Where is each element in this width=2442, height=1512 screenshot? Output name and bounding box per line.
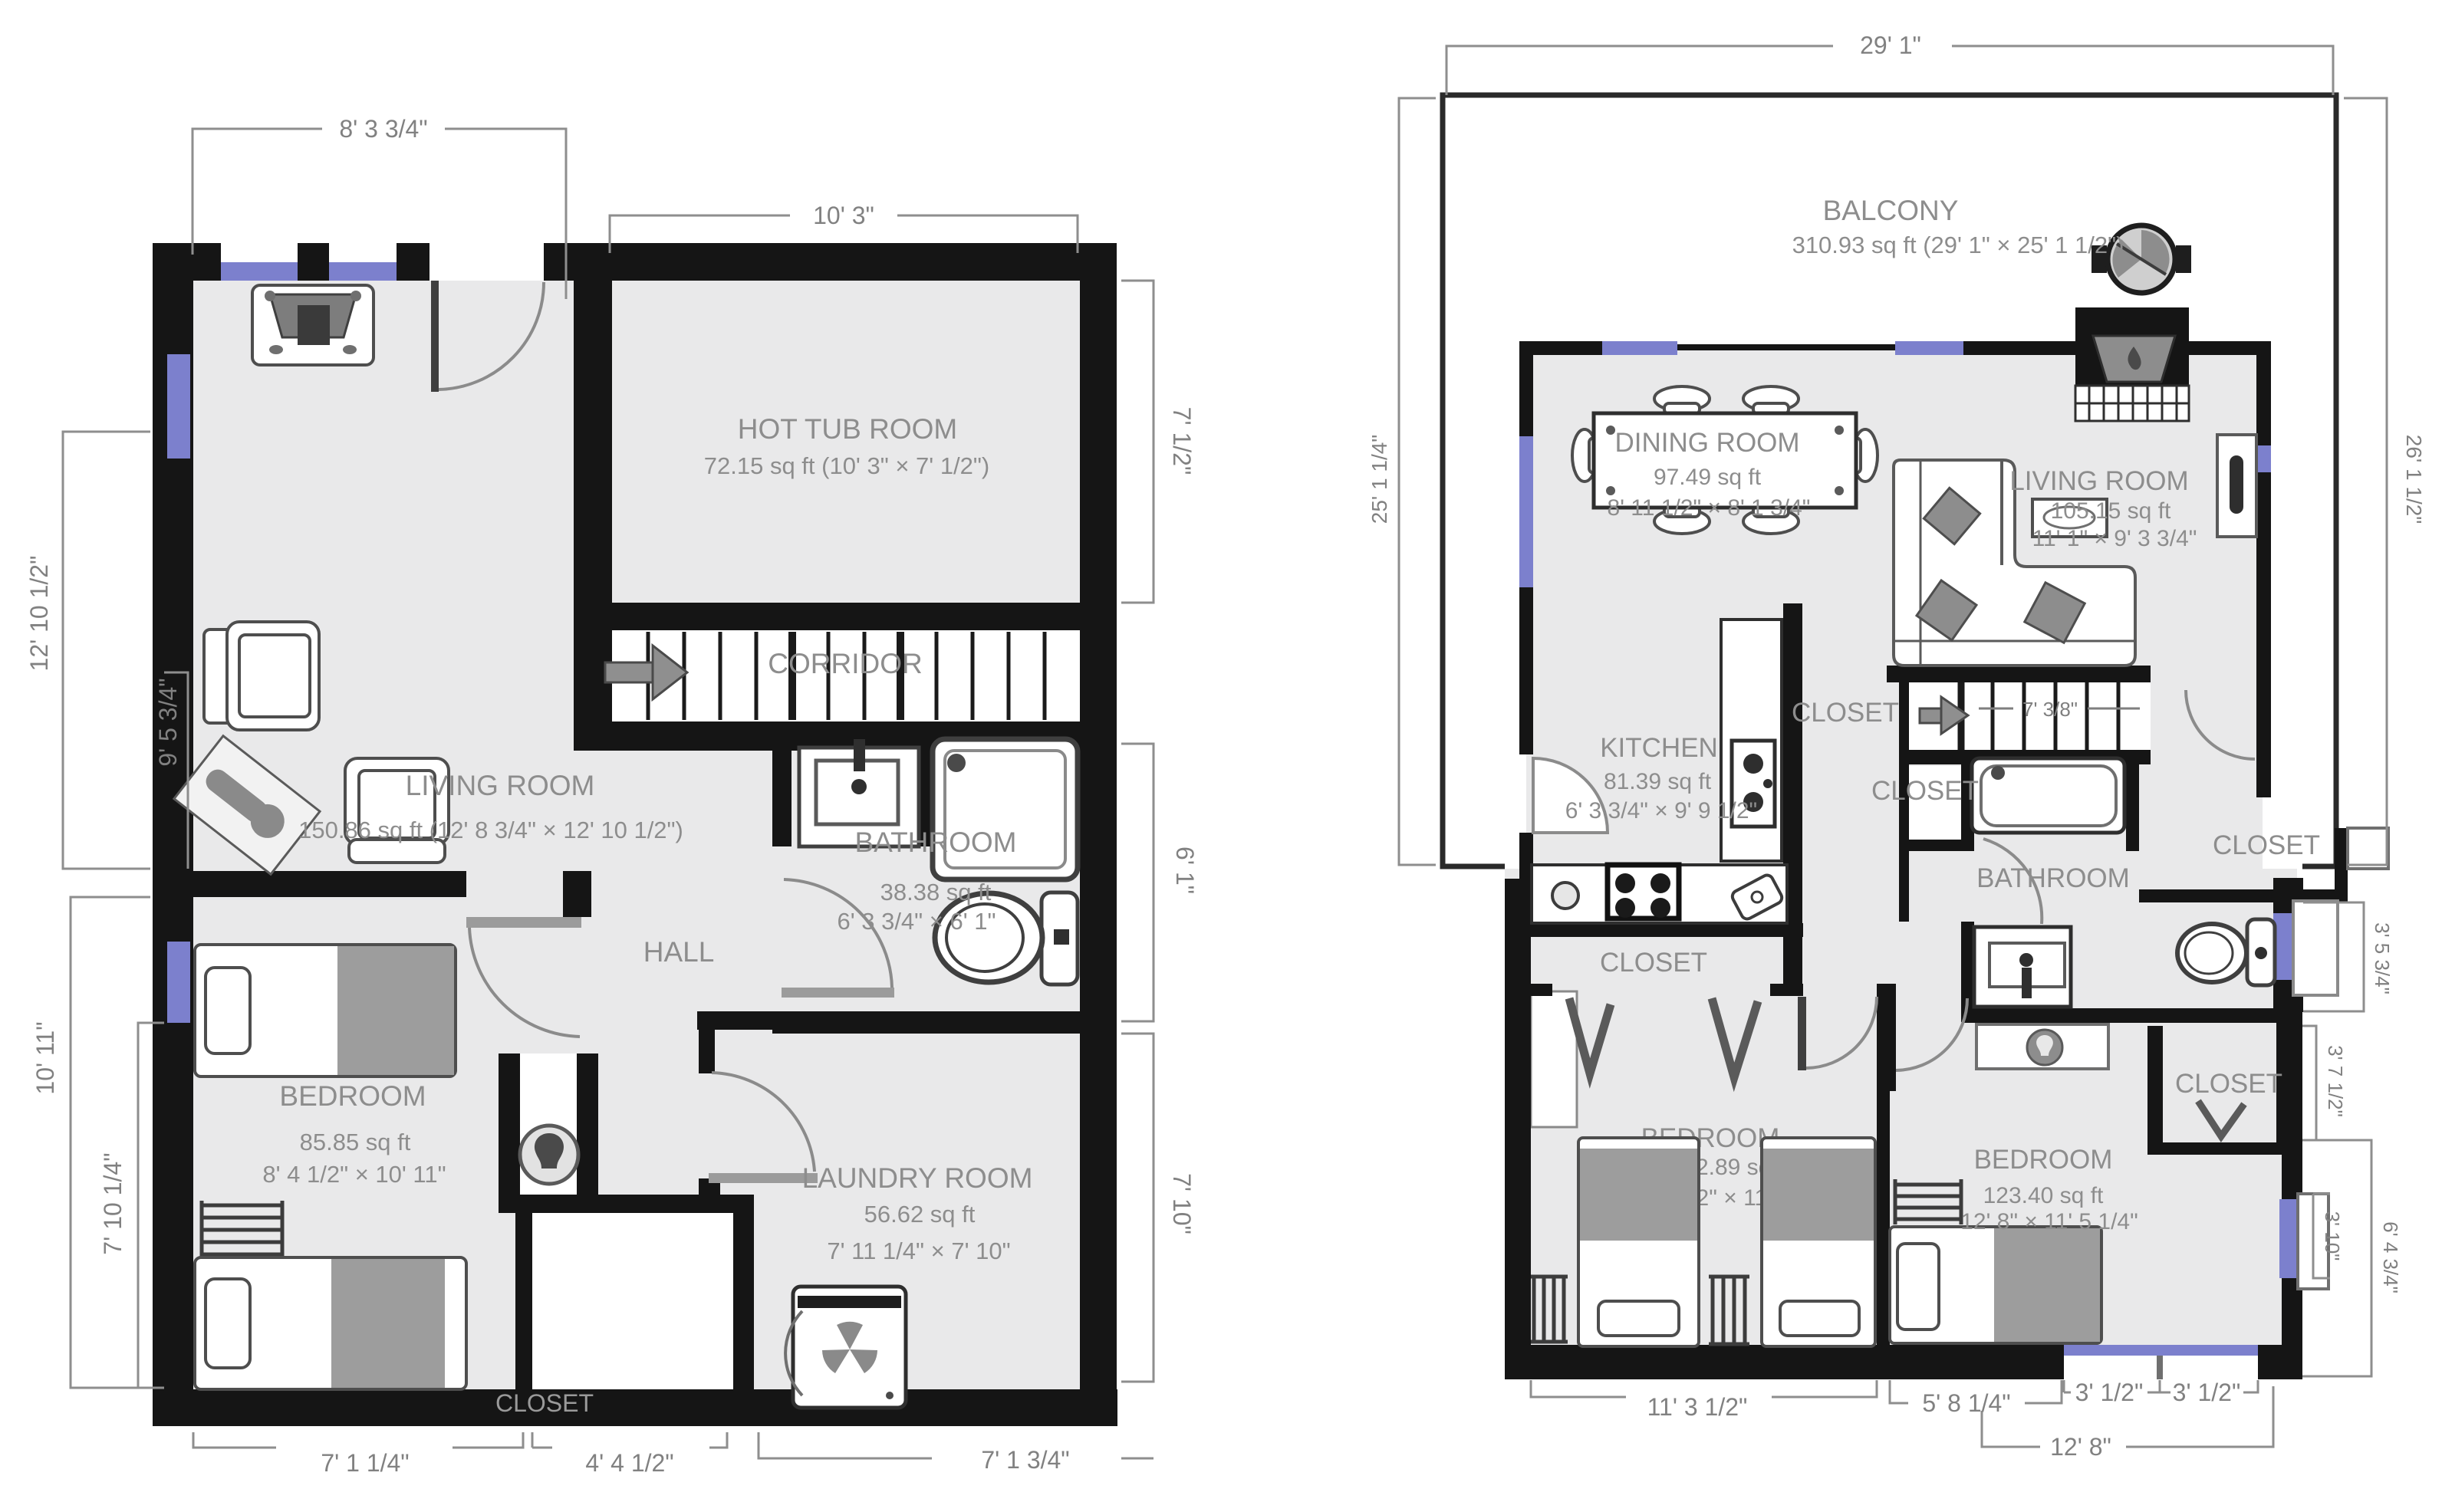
svg-text:CLOSET: CLOSET	[2213, 830, 2320, 860]
svg-text:CLOSET: CLOSET	[2175, 1069, 2282, 1099]
svg-text:3' 1/2": 3' 1/2"	[2173, 1379, 2241, 1406]
svg-text:BATHROOM: BATHROOM	[854, 827, 1016, 858]
svg-text:7' 10 1/4": 7' 10 1/4"	[99, 1152, 127, 1254]
svg-text:7' 1 1/4": 7' 1 1/4"	[321, 1449, 409, 1477]
svg-text:7' 11 1/4" × 7' 10": 7' 11 1/4" × 7' 10"	[827, 1238, 1010, 1264]
svg-text:8' 4 1/2" × 10' 11": 8' 4 1/2" × 10' 11"	[262, 1161, 446, 1188]
svg-text:26' 1 1/2": 26' 1 1/2"	[2402, 435, 2426, 524]
svg-text:97.49 sq ft: 97.49 sq ft	[1654, 465, 1762, 490]
svg-text:7' 1/2": 7' 1/2"	[1168, 407, 1196, 475]
svg-text:KITCHEN: KITCHEN	[1600, 733, 1718, 763]
svg-text:CLOSET: CLOSET	[495, 1389, 594, 1417]
svg-text:BEDROOM: BEDROOM	[1974, 1145, 2113, 1175]
svg-text:7' 1 3/4": 7' 1 3/4"	[981, 1446, 1069, 1474]
svg-text:123.40 sq ft: 123.40 sq ft	[1983, 1183, 2104, 1208]
svg-text:6' 3 3/4" × 9' 9 1/2": 6' 3 3/4" × 9' 9 1/2"	[1565, 798, 1757, 823]
svg-text:105.15 sq ft: 105.15 sq ft	[2051, 498, 2171, 524]
svg-text:29' 1": 29' 1"	[1860, 31, 1921, 59]
svg-text:LAUNDRY ROOM: LAUNDRY ROOM	[802, 1162, 1033, 1194]
svg-text:150.86 sq ft (12' 8 3/4" × 12': 150.86 sq ft (12' 8 3/4" × 12' 10 1/2")	[298, 817, 683, 843]
svg-text:81.39 sq ft: 81.39 sq ft	[1604, 769, 1712, 794]
svg-text:3' 10": 3' 10"	[2321, 1211, 2344, 1261]
svg-text:BATHROOM: BATHROOM	[1976, 863, 2130, 893]
svg-text:7' 3/8": 7' 3/8"	[2022, 698, 2078, 721]
svg-text:8' 3 3/4": 8' 3 3/4"	[339, 115, 427, 143]
svg-text:HALL: HALL	[643, 936, 715, 968]
svg-text:6' 4 3/4": 6' 4 3/4"	[2379, 1221, 2402, 1293]
svg-text:10' 11": 10' 11"	[31, 1021, 59, 1094]
svg-text:38.38 sq ft: 38.38 sq ft	[880, 879, 992, 906]
svg-text:3' 5 3/4": 3' 5 3/4"	[2371, 922, 2394, 994]
svg-text:3' 7 1/2": 3' 7 1/2"	[2324, 1045, 2347, 1117]
svg-text:12' 8" × 11' 5 1/4": 12' 8" × 11' 5 1/4"	[1960, 1209, 2138, 1234]
svg-text:5' 8 1/4": 5' 8 1/4"	[1922, 1389, 2010, 1417]
svg-text:72.15 sq ft (10' 3" × 7' 1/2"): 72.15 sq ft (10' 3" × 7' 1/2")	[704, 452, 989, 479]
svg-text:CLOSET: CLOSET	[1871, 776, 1979, 806]
svg-text:3' 1/2": 3' 1/2"	[2075, 1379, 2144, 1406]
svg-text:8' 11 1/2" × 8' 1 3/4": 8' 11 1/2" × 8' 1 3/4"	[1608, 495, 1811, 521]
svg-text:CLOSET: CLOSET	[1792, 698, 1899, 728]
svg-text:56.62 sq ft: 56.62 sq ft	[864, 1201, 976, 1228]
svg-text:BALCONY: BALCONY	[1823, 195, 1959, 226]
svg-text:CLOSET: CLOSET	[1600, 948, 1707, 978]
svg-text:HOT TUB ROOM: HOT TUB ROOM	[738, 413, 957, 445]
svg-text:LIVING ROOM: LIVING ROOM	[406, 770, 595, 801]
svg-text:9' 5 3/4": 9' 5 3/4"	[154, 678, 182, 766]
svg-text:DINING ROOM: DINING ROOM	[1614, 428, 1799, 458]
svg-text:10' 3": 10' 3"	[813, 202, 874, 229]
svg-text:BEDROOM: BEDROOM	[279, 1080, 426, 1112]
svg-text:11' 1" × 9' 3 3/4": 11' 1" × 9' 3 3/4"	[2032, 526, 2197, 551]
svg-text:85.85 sq ft: 85.85 sq ft	[300, 1129, 411, 1155]
svg-text:12' 10 1/2": 12' 10 1/2"	[25, 556, 53, 672]
svg-text:6' 1": 6' 1"	[1171, 846, 1199, 894]
svg-text:310.93 sq ft (29' 1" × 25' 1 1: 310.93 sq ft (29' 1" × 25' 1 1/2")	[1792, 232, 2124, 258]
svg-text:LIVING ROOM: LIVING ROOM	[2009, 466, 2188, 496]
svg-text:11' 3 1/2": 11' 3 1/2"	[1647, 1393, 1748, 1421]
svg-text:CORRIDOR: CORRIDOR	[768, 648, 922, 679]
svg-text:6' 3 3/4" × 6' 1": 6' 3 3/4" × 6' 1"	[837, 908, 996, 935]
svg-text:7' 10": 7' 10"	[1168, 1173, 1196, 1234]
svg-text:12' 8": 12' 8"	[2050, 1433, 2111, 1461]
svg-text:4' 4 1/2": 4' 4 1/2"	[585, 1449, 673, 1477]
svg-text:25' 1 1/4": 25' 1 1/4"	[1367, 435, 1391, 524]
